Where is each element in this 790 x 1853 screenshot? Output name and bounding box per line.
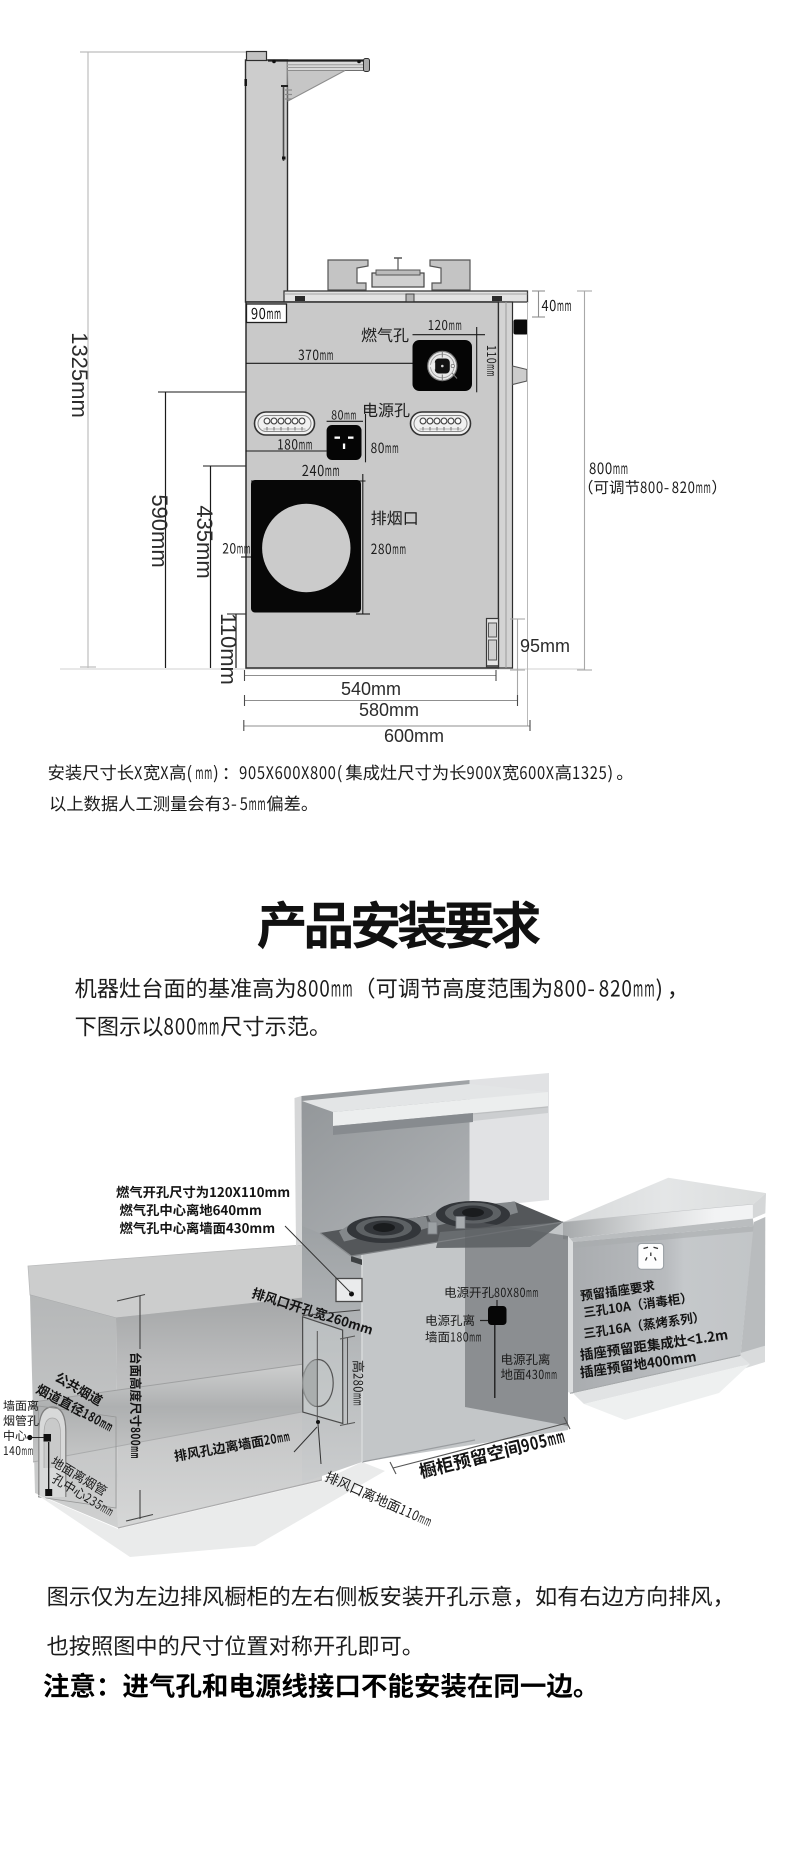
svg-text:540mm: 540mm (341, 679, 401, 699)
svg-text:580mm: 580mm (359, 700, 419, 720)
svg-text:95mm: 95mm (520, 636, 570, 656)
svg-text:590mm: 590mm (147, 494, 172, 567)
svg-text:435mm: 435mm (192, 505, 217, 578)
svg-text:110mm: 110mm (216, 613, 241, 685)
svg-text:600mm: 600mm (384, 726, 444, 746)
svg-text:1325mm: 1325mm (67, 332, 92, 418)
